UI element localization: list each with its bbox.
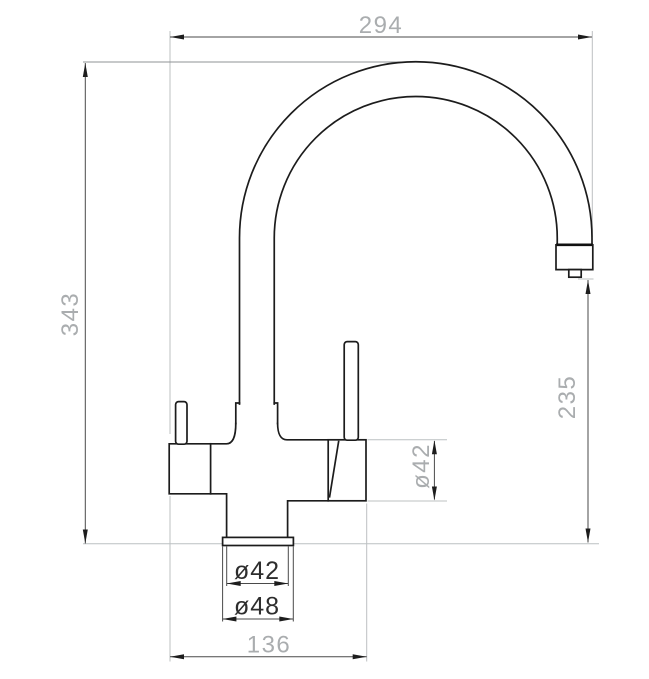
column-step [236,403,278,424]
arrow-down-icon [586,529,591,543]
technical-drawing-page: 294 343 235 ø42 ø42 [0,0,649,679]
spout-inner-wall [274,97,557,405]
dim-label-shank-42: ø42 [234,557,280,585]
faucet-dimension-drawing: 294 343 235 ø42 ø42 [0,0,649,679]
dim-label-valve-42: ø42 [408,443,435,489]
dimension-spout-reach: 294 [170,12,592,40]
dim-label-235: 235 [554,375,581,420]
arrow-right-icon [578,35,592,40]
arrow-up-icon [83,63,88,77]
dimension-base-width: 136 [170,632,367,660]
spout-outer-wall [240,62,593,404]
right-handle-lever [344,342,358,441]
dimension-shank-diameter: ø42 [227,557,289,586]
dim-label-136: 136 [247,632,292,659]
dim-label-343: 343 [57,292,84,337]
base-flange [223,537,294,545]
faucet-outline [169,62,593,546]
aerator-housing [556,245,593,270]
arrow-down-icon [83,530,88,544]
arrow-right-icon [279,617,293,622]
dimension-total-height: 343 [57,63,88,544]
left-handle-lever [176,402,187,445]
dimension-flange-diameter: ø48 [222,593,293,622]
arrow-right-icon [353,654,367,659]
dim-label-flange-48: ø48 [234,593,280,621]
aerator-tip [569,270,581,278]
arrow-left-icon [170,654,184,659]
right-valve-slant [330,442,339,497]
arrow-left-icon [170,35,184,40]
dimension-outlet-height: 235 [554,280,591,543]
dimension-valve-diameter: ø42 [408,440,437,500]
body-right-lower [288,501,329,538]
arrow-up-icon [586,280,591,294]
dim-label-294: 294 [359,12,404,39]
extension-lines [83,31,599,662]
body-right-profile [278,424,329,440]
